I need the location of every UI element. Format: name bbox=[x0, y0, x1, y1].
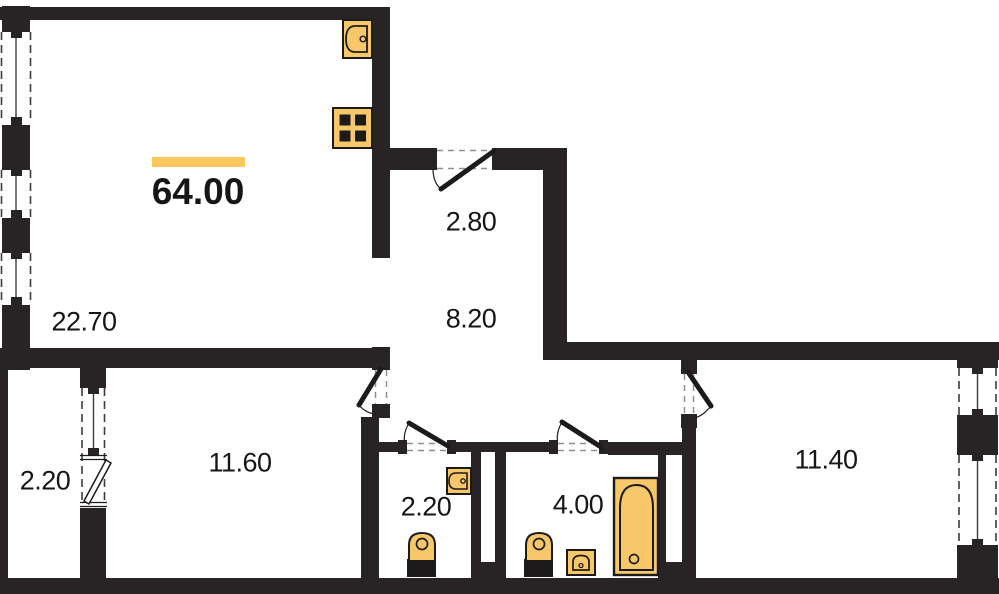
kitchen-sink-icon bbox=[343, 20, 372, 58]
bathroom-toilet-icon bbox=[524, 533, 553, 577]
wc-washbasin-icon bbox=[447, 468, 471, 494]
bathroom-door bbox=[557, 422, 601, 451]
total-area-label: 64.00 bbox=[152, 171, 245, 213]
walls-layer bbox=[0, 6, 999, 594]
window-left-3 bbox=[2, 251, 31, 305]
balcony-door-window bbox=[80, 386, 111, 507]
window-right-2 bbox=[959, 453, 996, 547]
room-area-label-bedroom2: 11.40 bbox=[794, 445, 857, 476]
doors-layer bbox=[359, 151, 711, 451]
room-area-label-living: 22.70 bbox=[51, 307, 116, 338]
room-area-label-bedroom1: 11.60 bbox=[208, 448, 271, 479]
bedroom2-door bbox=[685, 372, 712, 418]
room-area-label-bathroom: 4.00 bbox=[553, 490, 604, 521]
floor-plan: 64.00 22.70 2.80 8.20 11.60 2.20 2.20 4.… bbox=[0, 0, 999, 594]
hand-basin-icon bbox=[567, 550, 595, 575]
total-area-accent-bar bbox=[152, 157, 245, 167]
room-area-label-entry: 2.80 bbox=[446, 207, 497, 238]
balcony-door-leaf bbox=[84, 460, 111, 504]
wc-toilet-icon bbox=[407, 533, 436, 577]
window-left-2 bbox=[2, 168, 31, 218]
room-area-label-wc: 2.20 bbox=[401, 492, 452, 523]
window-left-1 bbox=[2, 30, 31, 125]
stove-icon bbox=[333, 108, 372, 148]
floor-plan-drawing bbox=[0, 0, 999, 594]
wc-door bbox=[404, 423, 448, 451]
room-area-label-balcony: 2.20 bbox=[20, 466, 71, 497]
room-area-label-hall: 8.20 bbox=[446, 304, 497, 335]
window-right-1 bbox=[959, 366, 996, 417]
entrance-door bbox=[433, 151, 494, 190]
bathtub-icon bbox=[614, 478, 658, 575]
